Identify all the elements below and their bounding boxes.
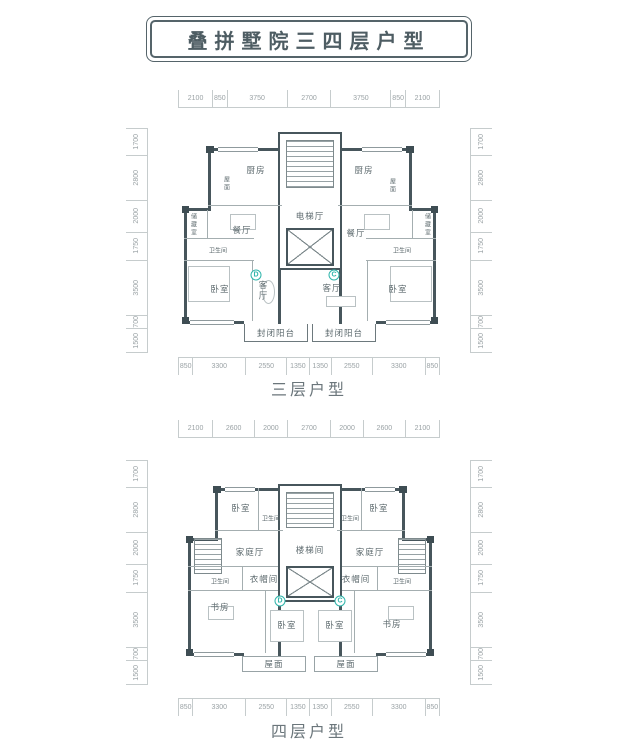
partition-line xyxy=(354,590,355,653)
wall-chunk xyxy=(431,206,438,213)
dim-value: 700 xyxy=(478,648,485,660)
room-label-storage: 储藏室 xyxy=(423,213,432,237)
dim-value: 2000 xyxy=(330,420,363,437)
room-label-study: 书房 xyxy=(210,601,229,613)
dim-value: 2000 xyxy=(478,540,485,556)
unit-mark-d: D xyxy=(275,596,286,607)
page-title: 叠拼墅院三四层户型 xyxy=(188,25,431,54)
wall-segment xyxy=(184,208,187,324)
partition-line xyxy=(215,530,283,531)
dim-value: 3300 xyxy=(192,699,245,716)
room-label-bath: 卫生间 xyxy=(211,577,229,586)
dim-value: 1700 xyxy=(133,134,140,150)
dim-value: 1500 xyxy=(478,665,485,681)
wall-chunk xyxy=(182,206,189,213)
dim-value: 2100 xyxy=(178,90,212,107)
room-label-living: 客厅 xyxy=(322,282,341,294)
window xyxy=(218,147,258,152)
partition-line xyxy=(184,238,254,239)
dim-value: 1700 xyxy=(478,134,485,150)
room-label-bedroom: 卧室 xyxy=(325,619,344,631)
window xyxy=(194,652,234,657)
dim-value: 3300 xyxy=(372,358,425,375)
plan3-dim-top: 2100 850 3750 2700 3750 850 2100 xyxy=(178,90,440,108)
plan3-caption: 三层户型 xyxy=(271,376,347,400)
dim-value: 2000 xyxy=(133,208,140,224)
room-label-bath: 卫生间 xyxy=(341,514,359,523)
dim-value: 3500 xyxy=(478,280,485,296)
room-label-bedroom: 卧室 xyxy=(231,502,250,514)
dim-value: 1350 xyxy=(286,358,308,375)
sofa xyxy=(326,296,356,307)
partition-line xyxy=(265,590,266,653)
wall-chunk xyxy=(213,486,221,493)
wall-segment xyxy=(208,148,211,211)
elevator-shaft xyxy=(286,566,334,598)
wall-segment xyxy=(278,268,281,324)
room-label-stairwell: 楼梯间 xyxy=(296,544,325,556)
window xyxy=(225,487,255,492)
dim-value: 850 xyxy=(425,358,440,375)
partition-line xyxy=(207,210,208,238)
room-label-bath: 卫生间 xyxy=(393,577,411,586)
dim-value: 3500 xyxy=(478,612,485,628)
partition-line xyxy=(208,205,282,206)
dim-value: 2000 xyxy=(133,540,140,556)
room-label-kitchen: 厨房 xyxy=(354,164,373,176)
dim-value: 850 xyxy=(212,90,226,107)
wall-chunk xyxy=(206,146,214,153)
dim-value: 2800 xyxy=(133,170,140,186)
dim-value: 2800 xyxy=(133,502,140,518)
wall-segment xyxy=(215,488,218,541)
room-label-dining: 餐厅 xyxy=(346,227,365,239)
dim-value: 2600 xyxy=(363,420,405,437)
window xyxy=(386,320,430,325)
dim-value: 2000 xyxy=(478,208,485,224)
partition-line xyxy=(338,205,412,206)
room-label-cloak: 衣帽间 xyxy=(250,573,279,585)
staircase xyxy=(398,538,426,574)
dim-value: 2800 xyxy=(478,502,485,518)
wall-segment xyxy=(409,148,412,211)
plan4-caption: 四层户型 xyxy=(271,718,347,742)
staircase xyxy=(286,140,334,188)
dim-value: 1500 xyxy=(478,333,485,349)
unit-mark-d: D xyxy=(251,270,262,281)
room-label-bedroom: 卧室 xyxy=(369,502,388,514)
dim-value: 700 xyxy=(478,316,485,328)
plan4-dim-top: 2100 2600 2000 2700 2000 2600 2100 xyxy=(178,420,440,438)
dim-value: 3500 xyxy=(133,280,140,296)
partition-line xyxy=(361,488,362,531)
dim-value: 2700 xyxy=(287,420,331,437)
unit-mark-c: C xyxy=(329,270,340,281)
wall-chunk xyxy=(427,649,434,656)
plan4-dim-right: 1700 2800 2000 1750 3500 700 1500 xyxy=(470,460,492,685)
partition-line xyxy=(188,566,278,567)
wall-chunk xyxy=(399,486,407,493)
wall-chunk xyxy=(431,317,438,324)
dim-value: 700 xyxy=(133,316,140,328)
room-label-storage: 储藏室 xyxy=(189,213,198,237)
partition-line xyxy=(342,566,432,567)
room-label-bedroom: 卧室 xyxy=(388,283,407,295)
wall-chunk xyxy=(182,317,189,324)
wall-chunk xyxy=(406,146,414,153)
room-label-cloak: 衣帽间 xyxy=(342,573,371,585)
dim-value: 1500 xyxy=(133,333,140,349)
dim-value: 3500 xyxy=(133,612,140,628)
wall-chunk xyxy=(427,536,434,543)
wall-chunk xyxy=(186,649,193,656)
partition-line xyxy=(412,210,413,238)
dim-value: 1500 xyxy=(133,665,140,681)
room-label-roof: 屋面 xyxy=(388,178,397,194)
room-label-bath: 卫生间 xyxy=(393,246,411,255)
plan4-dim-bottom: 850 3300 2550 1350 1350 2550 3300 850 xyxy=(178,698,440,716)
dim-value: 2100 xyxy=(178,420,212,437)
room-label-family: 家庭厅 xyxy=(236,546,265,558)
dim-value: 2550 xyxy=(331,699,372,716)
title-frame-inner: 叠拼墅院三四层户型 xyxy=(150,20,468,58)
staircase xyxy=(286,492,334,528)
dim-value: 2550 xyxy=(245,358,286,375)
unit-mark-c: C xyxy=(335,596,346,607)
room-label-study: 书房 xyxy=(382,618,401,630)
plan3-dim-bottom: 850 3300 2550 1350 1350 2550 3300 850 xyxy=(178,357,440,375)
room-label-balcony: 封闭阳台 xyxy=(257,327,295,339)
window xyxy=(386,652,426,657)
dim-value: 850 xyxy=(425,699,440,716)
dim-value: 3300 xyxy=(192,358,245,375)
partition-line xyxy=(242,566,243,591)
dim-value: 2550 xyxy=(245,699,286,716)
dim-value: 1700 xyxy=(133,466,140,482)
partition-line xyxy=(366,238,436,239)
dim-value: 1750 xyxy=(133,238,140,254)
plan3-drawing: 厨房 厨房 屋面 屋面 餐厅 餐厅 储藏室 储藏室 卫生间 卫生间 卧室 卧室 … xyxy=(180,128,440,353)
room-label-bedroom: 卧室 xyxy=(210,283,229,295)
room-label-bedroom: 卧室 xyxy=(277,619,296,631)
window xyxy=(362,147,402,152)
room-label-bath: 卫生间 xyxy=(262,514,280,523)
plan4-drawing: 卧室 卧室 卫生间 卫生间 家庭厅 家庭厅 楼梯间 衣帽间 衣帽间 卫生间 卫生… xyxy=(180,460,440,685)
partition-line xyxy=(367,260,368,321)
plan4-dim-left: 1700 2800 2000 1750 3500 700 1500 xyxy=(126,460,148,685)
dim-value: 3750 xyxy=(330,90,390,107)
dim-value: 1350 xyxy=(309,699,331,716)
room-label-roof: 屋面 xyxy=(222,176,231,192)
dim-value: 1750 xyxy=(478,238,485,254)
partition-line xyxy=(258,488,259,531)
wall-chunk xyxy=(186,536,193,543)
wall-segment xyxy=(429,538,432,656)
room-label-elevator-hall: 电梯厅 xyxy=(296,210,325,222)
partition-line xyxy=(342,590,432,591)
room-label-kitchen: 厨房 xyxy=(246,164,265,176)
room-label-living: 客厅 xyxy=(257,281,269,302)
dim-value: 850 xyxy=(178,699,192,716)
plan3-dim-right: 1700 2800 2000 1750 3500 700 1500 xyxy=(470,128,492,353)
plan3-dim-left: 1700 2800 2000 1750 3500 700 1500 xyxy=(126,128,148,353)
room-label-roof: 屋面 xyxy=(336,658,355,670)
dim-value: 1350 xyxy=(309,358,331,375)
dining-table xyxy=(364,214,390,230)
window xyxy=(190,320,234,325)
dim-value: 1750 xyxy=(478,570,485,586)
window xyxy=(365,487,395,492)
staircase xyxy=(194,538,222,574)
dim-value: 2100 xyxy=(405,420,440,437)
elevator-shaft xyxy=(286,228,334,266)
wall-segment xyxy=(188,538,191,656)
dim-value: 3300 xyxy=(372,699,425,716)
room-label-dining: 餐厅 xyxy=(232,224,251,236)
title-frame: 叠拼墅院三四层户型 xyxy=(146,16,472,62)
room-label-roof: 屋面 xyxy=(264,658,283,670)
dim-value: 1750 xyxy=(133,570,140,586)
dim-value: 850 xyxy=(178,358,192,375)
partition-line xyxy=(184,260,254,261)
partition-line xyxy=(337,530,405,531)
dim-value: 1700 xyxy=(478,466,485,482)
dim-value: 2600 xyxy=(212,420,254,437)
wall-segment xyxy=(433,208,436,324)
dim-value: 2100 xyxy=(405,90,440,107)
dim-value: 2000 xyxy=(254,420,287,437)
room-label-family: 家庭厅 xyxy=(356,546,385,558)
dim-value: 2550 xyxy=(331,358,372,375)
room-label-bath: 卫生间 xyxy=(209,246,227,255)
partition-line xyxy=(377,566,378,591)
room-label-balcony: 封闭阳台 xyxy=(325,327,363,339)
dim-value: 1350 xyxy=(286,699,308,716)
wall-segment xyxy=(402,488,405,541)
dim-value: 3750 xyxy=(227,90,287,107)
dim-value: 2800 xyxy=(478,170,485,186)
dim-value: 700 xyxy=(133,648,140,660)
dim-value: 2700 xyxy=(287,90,331,107)
dim-value: 850 xyxy=(390,90,404,107)
partition-line xyxy=(366,260,436,261)
